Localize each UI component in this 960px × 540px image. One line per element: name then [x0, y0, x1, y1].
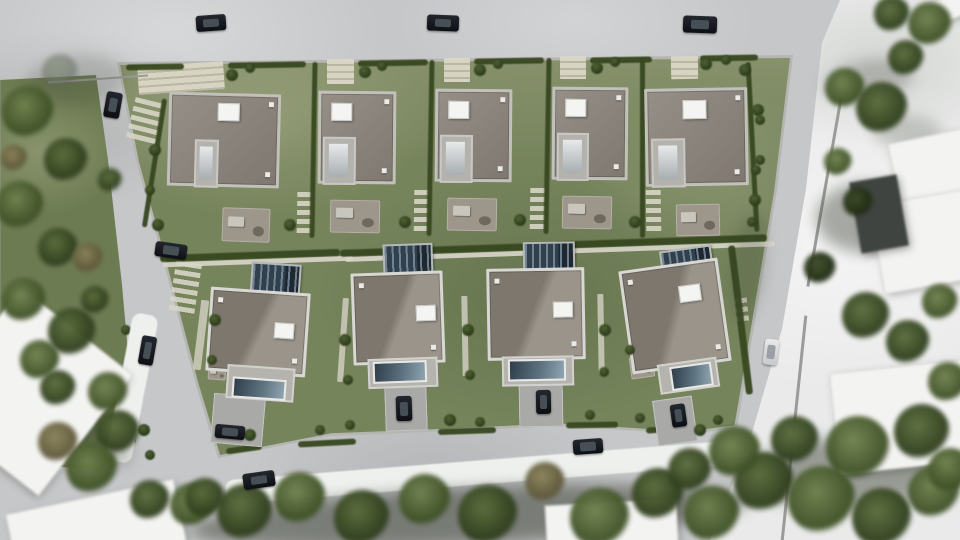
- parked-car: [762, 338, 779, 366]
- layer-cars: [0, 0, 960, 540]
- parked-car: [396, 395, 413, 421]
- parked-car: [573, 437, 604, 454]
- car-windshield: [203, 18, 219, 28]
- parked-car: [242, 470, 276, 490]
- car-windshield: [400, 401, 409, 415]
- car-windshield: [673, 408, 683, 422]
- parked-car: [103, 91, 123, 119]
- parked-car: [214, 424, 245, 441]
- aerial-scene: [0, 0, 960, 540]
- car-windshield: [435, 18, 452, 28]
- parked-car: [137, 334, 157, 365]
- car-windshield: [162, 245, 180, 256]
- parked-car: [535, 390, 550, 414]
- parked-car: [427, 14, 460, 31]
- car-windshield: [691, 19, 709, 29]
- car-windshield: [222, 427, 238, 436]
- car-windshield: [767, 344, 776, 359]
- parked-car: [683, 15, 718, 33]
- car-windshield: [539, 395, 547, 409]
- car-windshield: [250, 474, 268, 485]
- parked-car: [154, 240, 188, 259]
- car-windshield: [108, 97, 119, 113]
- parked-car: [195, 14, 226, 32]
- car-windshield: [142, 341, 152, 358]
- parked-car: [669, 403, 687, 428]
- car-windshield: [580, 441, 596, 450]
